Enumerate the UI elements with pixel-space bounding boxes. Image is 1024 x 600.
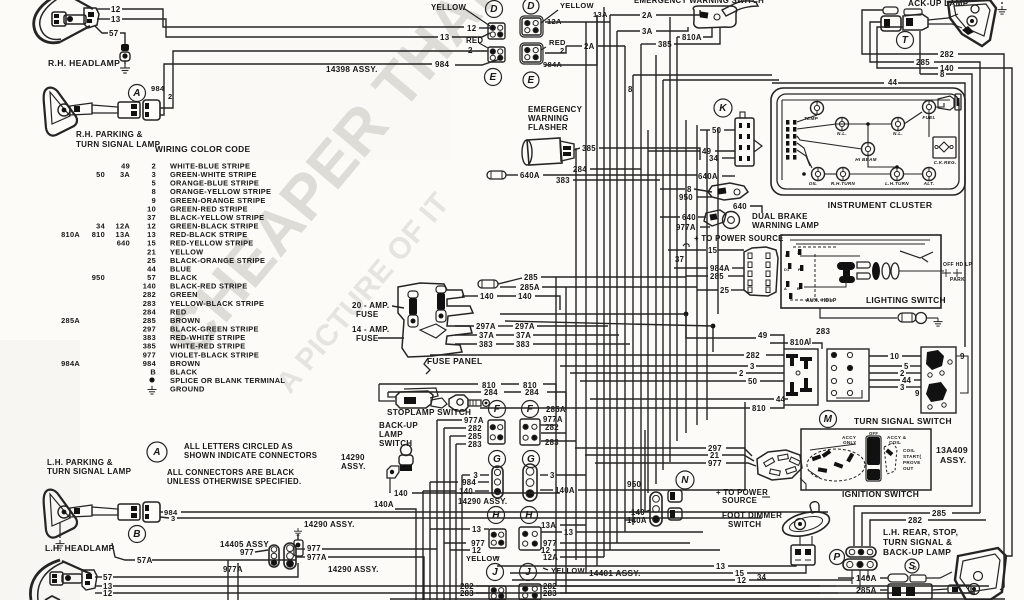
svg-text:977: 977: [240, 548, 254, 557]
svg-text:8: 8: [940, 70, 945, 79]
svg-text:5: 5: [904, 362, 909, 371]
svg-text:977A: 977A: [307, 553, 327, 562]
svg-text:E: E: [528, 75, 535, 86]
svg-text:12: 12: [737, 576, 747, 585]
svg-text:L.H. PARKING &: L.H. PARKING &: [47, 458, 113, 467]
svg-text:14290 ASSY.: 14290 ASSY.: [328, 565, 379, 574]
svg-text:37: 37: [675, 255, 684, 264]
svg-text:R.H.TURN: R.H.TURN: [831, 181, 856, 186]
svg-text:DUAL BRAKE: DUAL BRAKE: [752, 212, 808, 221]
svg-text:44: 44: [888, 78, 898, 87]
svg-text:140: 140: [480, 292, 494, 301]
svg-text:284: 284: [573, 165, 587, 174]
svg-text:57: 57: [103, 573, 113, 582]
svg-text:UNLESS OTHERWISE SPECIFIED.: UNLESS OTHERWISE SPECIFIED.: [167, 477, 301, 486]
svg-text:50: 50: [96, 170, 105, 179]
svg-text:3: 3: [171, 514, 175, 523]
svg-text:B: B: [150, 367, 156, 376]
svg-text:285A: 285A: [856, 586, 877, 595]
svg-text:J: J: [492, 567, 498, 578]
svg-text:950: 950: [627, 480, 641, 489]
svg-text:2: 2: [468, 46, 473, 55]
svg-text:B: B: [797, 287, 800, 291]
svg-text:K: K: [719, 103, 727, 114]
svg-text:2: 2: [739, 369, 744, 378]
svg-text:IGNITION SWITCH: IGNITION SWITCH: [842, 489, 919, 499]
svg-text:977A: 977A: [676, 223, 696, 232]
svg-text:F: F: [527, 404, 534, 415]
svg-text:3A: 3A: [120, 170, 130, 179]
svg-text:WARNING LAMP: WARNING LAMP: [752, 221, 820, 230]
svg-text:810A: 810A: [61, 230, 80, 239]
svg-text:140A: 140A: [374, 500, 394, 509]
svg-text:297A: 297A: [476, 322, 496, 331]
svg-text:STOPLAMP SWITCH: STOPLAMP SWITCH: [387, 408, 471, 417]
svg-text:810A: 810A: [682, 33, 702, 42]
svg-text:383: 383: [516, 340, 530, 349]
svg-text:285: 285: [916, 58, 930, 67]
svg-text:20 - AMP.: 20 - AMP.: [352, 301, 389, 310]
svg-text:12: 12: [467, 24, 477, 33]
svg-text:F: F: [494, 404, 501, 415]
svg-text:8: 8: [628, 85, 633, 94]
svg-text:L.H. HEADLAMP: L.H. HEADLAMP: [45, 543, 115, 553]
svg-text:YELLOW: YELLOW: [466, 554, 501, 563]
svg-text:OUT: OUT: [903, 466, 914, 471]
svg-text:ALT.: ALT.: [923, 181, 935, 186]
svg-text:283: 283: [468, 440, 482, 449]
svg-text:640A: 640A: [520, 171, 540, 180]
svg-text:02: 02: [785, 254, 790, 258]
svg-text:984: 984: [435, 60, 449, 69]
svg-text:49: 49: [758, 331, 768, 340]
svg-text:ASSY.: ASSY.: [341, 462, 366, 471]
svg-text:140A: 140A: [627, 516, 647, 525]
svg-text:14 - AMP.: 14 - AMP.: [352, 325, 389, 334]
svg-text:37A: 37A: [479, 331, 494, 340]
svg-text:D: D: [527, 1, 535, 12]
svg-text:640: 640: [117, 239, 130, 248]
svg-text:13A: 13A: [593, 10, 608, 19]
svg-text:OFF: OFF: [869, 431, 878, 436]
svg-text:BACK-UP LAMP: BACK-UP LAMP: [883, 547, 951, 557]
svg-text:SWITCH: SWITCH: [379, 439, 412, 448]
svg-text:3A: 3A: [642, 27, 653, 36]
svg-text:T: T: [902, 35, 909, 46]
svg-text:1: 1: [797, 251, 799, 255]
svg-text:12: 12: [111, 5, 121, 14]
svg-text:383: 383: [479, 340, 493, 349]
svg-text:13: 13: [472, 525, 482, 534]
svg-text:640A: 640A: [698, 172, 718, 181]
svg-text:+ TO POWER SOURCE: + TO POWER SOURCE: [694, 234, 784, 243]
svg-text:TURN SIGNAL LAMP: TURN SIGNAL LAMP: [47, 467, 132, 476]
svg-text:140A: 140A: [856, 574, 877, 583]
svg-text:297A: 297A: [515, 322, 535, 331]
svg-text:14290 ASSY.: 14290 ASSY.: [304, 520, 355, 529]
svg-text:D: D: [913, 566, 917, 572]
svg-text:977: 977: [307, 544, 321, 553]
svg-text:810: 810: [92, 230, 105, 239]
svg-text:WARNING: WARNING: [528, 114, 569, 123]
svg-text:13: 13: [716, 562, 726, 571]
svg-text:L.H.TURN: L.H.TURN: [885, 181, 909, 186]
svg-text:OFF HD LP: OFF HD LP: [943, 262, 972, 268]
svg-text:13: 13: [440, 33, 450, 42]
svg-text:977A: 977A: [223, 565, 243, 574]
svg-text:810A: 810A: [790, 338, 810, 347]
svg-text:D: D: [490, 4, 498, 15]
svg-text:984A: 984A: [61, 359, 80, 368]
svg-text:2A: 2A: [642, 11, 653, 20]
svg-text:283: 283: [816, 327, 830, 336]
svg-text:N: N: [681, 475, 689, 486]
svg-text:E: E: [490, 72, 497, 83]
svg-text:FUSE: FUSE: [356, 310, 379, 319]
svg-text:A: A: [784, 287, 787, 291]
svg-text:YELLOW: YELLOW: [560, 1, 595, 10]
svg-text:282: 282: [908, 516, 922, 525]
svg-text:282: 282: [940, 50, 954, 59]
svg-text:284: 284: [525, 388, 539, 397]
svg-text:385: 385: [658, 40, 672, 49]
svg-text:282: 282: [545, 423, 559, 432]
svg-text:P: P: [834, 552, 841, 563]
svg-text:284: 284: [484, 388, 498, 397]
svg-text:285A: 285A: [520, 283, 540, 292]
svg-text:810: 810: [752, 404, 766, 413]
svg-text:FOOT DIMMER: FOOT DIMMER: [722, 511, 782, 520]
svg-text:640: 640: [733, 202, 747, 211]
svg-text:A: A: [132, 88, 141, 99]
svg-text:977: 977: [708, 459, 722, 468]
svg-text:ALL CONNECTORS ARE BLACK: ALL CONNECTORS ARE BLACK: [167, 468, 295, 477]
svg-text:140: 140: [459, 487, 473, 496]
svg-text:COIL: COIL: [903, 448, 915, 453]
svg-text:285A: 285A: [61, 316, 80, 325]
svg-text:GROUND: GROUND: [170, 385, 205, 394]
svg-text:FUSE PANEL: FUSE PANEL: [427, 356, 482, 366]
svg-text:13A409: 13A409: [936, 445, 968, 455]
svg-text:SHOWN INDICATE CONNECTORS: SHOWN INDICATE CONNECTORS: [184, 451, 317, 460]
svg-text:15: 15: [708, 246, 718, 255]
svg-text:385: 385: [582, 144, 596, 153]
svg-text:50: 50: [748, 377, 758, 386]
svg-text:P: P: [798, 268, 801, 272]
svg-text:640: 640: [682, 213, 696, 222]
svg-text:G: G: [493, 454, 501, 465]
svg-text:3: 3: [900, 383, 905, 392]
svg-text:57A: 57A: [137, 556, 153, 565]
svg-text:PROVE: PROVE: [903, 460, 921, 465]
svg-text:R.H. PARKING &: R.H. PARKING &: [76, 130, 143, 139]
svg-text:3: 3: [550, 471, 555, 480]
svg-text:D1: D1: [784, 268, 789, 272]
svg-text:285: 285: [710, 272, 724, 281]
svg-text:34: 34: [709, 154, 719, 163]
svg-text:283: 283: [543, 589, 557, 598]
svg-text:984: 984: [151, 84, 165, 93]
svg-text:14290 ASSY.: 14290 ASSY.: [458, 497, 507, 506]
svg-text:N.L.: N.L.: [893, 131, 903, 136]
svg-text:LAMP: LAMP: [379, 430, 403, 439]
svg-text:950: 950: [92, 273, 105, 282]
svg-text:37A: 37A: [516, 331, 531, 340]
svg-text:INSTRUMENT CLUSTER: INSTRUMENT CLUSTER: [828, 200, 933, 210]
svg-text:N.L.: N.L.: [837, 131, 847, 136]
svg-text:140: 140: [394, 489, 408, 498]
svg-text:A: A: [152, 447, 161, 458]
svg-text:25: 25: [720, 286, 730, 295]
svg-text:2A: 2A: [584, 42, 595, 51]
svg-text:984: 984: [462, 478, 476, 487]
svg-text:13A: 13A: [541, 521, 556, 530]
svg-text:FUSE: FUSE: [356, 334, 379, 343]
svg-text:383: 383: [556, 176, 570, 185]
svg-text:140: 140: [518, 292, 532, 301]
svg-text:B: B: [133, 529, 141, 540]
svg-text:BACK-UP: BACK-UP: [379, 421, 418, 430]
svg-text:SOURCE: SOURCE: [722, 496, 757, 505]
svg-text:L.H. REAR, STOP,: L.H. REAR, STOP,: [883, 527, 958, 537]
svg-text:TURN SIGNAL &: TURN SIGNAL &: [883, 537, 952, 547]
svg-text:YELLOW: YELLOW: [431, 3, 466, 12]
svg-text:R.H. HEADLAMP: R.H. HEADLAMP: [48, 58, 120, 68]
svg-text:13: 13: [111, 15, 121, 24]
svg-text:EMERGENCY: EMERGENCY: [528, 105, 583, 114]
svg-text:WIRING COLOR CODE: WIRING COLOR CODE: [155, 144, 250, 154]
svg-text:140A: 140A: [555, 486, 575, 495]
svg-text:COIL: COIL: [889, 440, 901, 445]
svg-text:950: 950: [679, 193, 693, 202]
svg-text:LIGHTING SWITCH: LIGHTING SWITCH: [866, 295, 946, 305]
svg-text:AUX. HDLP: AUX. HDLP: [806, 298, 837, 304]
svg-text:FLASHER: FLASHER: [528, 123, 568, 132]
svg-text:14290: 14290: [341, 453, 365, 462]
svg-text:283: 283: [545, 438, 559, 447]
svg-text:282: 282: [746, 351, 760, 360]
svg-text:C.K.REG.: C.K.REG.: [934, 160, 957, 165]
svg-text:2: 2: [168, 92, 172, 101]
svg-text:57: 57: [109, 29, 119, 38]
svg-text:ASSY.: ASSY.: [940, 455, 966, 465]
svg-text:START(: START(: [903, 454, 921, 459]
svg-text:285: 285: [524, 273, 538, 282]
svg-text:14398 ASSY.: 14398 ASSY.: [326, 65, 378, 74]
svg-text:SWITCH: SWITCH: [728, 520, 761, 529]
svg-text:50: 50: [712, 126, 722, 135]
svg-text:HI BEAM: HI BEAM: [855, 157, 877, 162]
svg-text:TURN SIGNAL LAMP: TURN SIGNAL LAMP: [76, 140, 161, 149]
svg-text:285: 285: [932, 509, 946, 518]
svg-text:12: 12: [103, 589, 113, 598]
svg-text:PARK: PARK: [950, 277, 965, 283]
svg-text:TURN SIGNAL SWITCH: TURN SIGNAL SWITCH: [854, 416, 952, 426]
svg-text:OIL: OIL: [809, 181, 818, 186]
svg-text:ALL LETTERS CIRCLED AS: ALL LETTERS CIRCLED AS: [184, 442, 293, 451]
svg-text:283: 283: [460, 589, 474, 598]
svg-text:3: 3: [750, 362, 755, 371]
svg-text:9: 9: [915, 389, 920, 398]
svg-text:10: 10: [890, 352, 900, 361]
svg-text:M: M: [824, 414, 833, 425]
